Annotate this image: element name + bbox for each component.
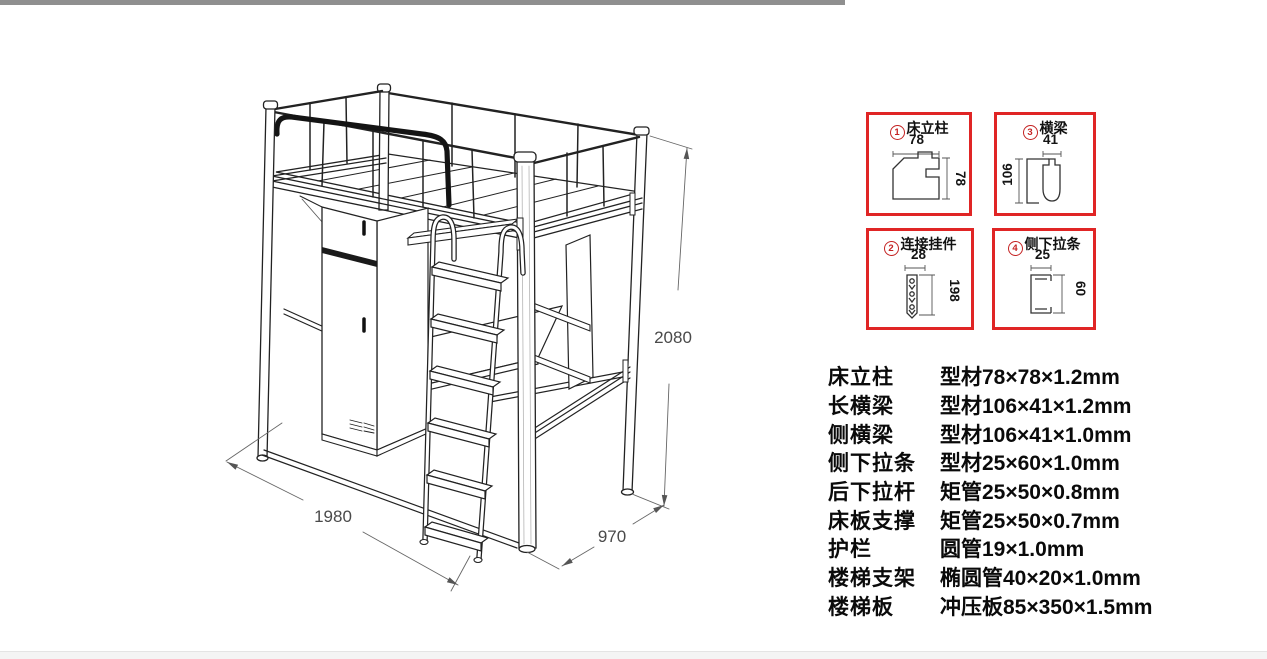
profile-dim-side: 60: [1073, 281, 1088, 296]
table-row: 侧横梁型材106×41×1.0mm: [828, 419, 1188, 448]
table-row: 床板支撑矩管25×50×0.7mm: [828, 505, 1188, 534]
table-row: 床立柱型材78×78×1.2mm: [828, 362, 1188, 391]
detail-box-side-tie-bar: 4侧下拉条 25 60: [992, 228, 1096, 330]
spec-value: 型材78×78×1.2mm: [940, 361, 1120, 391]
ladder: [420, 217, 523, 563]
spec-name: 侧横梁: [828, 419, 940, 449]
spec-value: 型材106×41×1.0mm: [940, 419, 1131, 449]
shelf-unit: [533, 235, 593, 389]
detail-box-beam: 3横梁 41 106: [994, 112, 1096, 216]
spec-value: 矩管25×50×0.8mm: [940, 476, 1120, 506]
spec-value: 圆管19×1.0mm: [940, 533, 1084, 563]
dim-length-label: 1980: [314, 507, 352, 526]
table-row: 楼梯板冲压板85×350×1.5mm: [828, 592, 1188, 621]
post-back-left: [378, 84, 391, 210]
bed-isometric-drawing: 1980 970 2080: [0, 0, 800, 650]
spec-table: 床立柱型材78×78×1.2mm 长横梁型材106×41×1.2mm 侧横梁型材…: [828, 362, 1188, 620]
profile-dim-side: 106: [1000, 163, 1015, 186]
spec-name: 护栏: [828, 533, 940, 563]
spec-name: 床板支撑: [828, 505, 940, 535]
dim-height-label: 2080: [654, 328, 692, 347]
table-row: 侧下拉条型材25×60×1.0mm: [828, 448, 1188, 477]
post-front-left: [257, 101, 278, 461]
table-row: 护栏圆管19×1.0mm: [828, 534, 1188, 563]
table-row: 楼梯支架椭圆管40×20×1.0mm: [828, 563, 1188, 592]
spec-name: 楼梯板: [828, 591, 940, 621]
post-back-right: [622, 127, 650, 495]
profile-dim-side: 198: [947, 279, 962, 302]
profile-dim-top: 28: [911, 247, 926, 262]
detail-box-connector-bracket: 2连接挂件 28 198: [866, 228, 974, 330]
spec-value: 椭圆管40×20×1.0mm: [940, 562, 1141, 592]
spec-name: 楼梯支架: [828, 562, 940, 592]
profile-dim-side: 78: [953, 171, 968, 186]
detail-box-bed-post: 1床立柱 78 78: [866, 112, 972, 216]
table-row: 后下拉杆矩管25×50×0.8mm: [828, 477, 1188, 506]
spec-name: 后下拉杆: [828, 476, 940, 506]
profile-dim-top: 25: [1035, 247, 1050, 262]
wardrobe-cabinet: [300, 196, 428, 456]
spec-value: 冲压板85×350×1.5mm: [940, 591, 1152, 621]
spec-name: 侧下拉条: [828, 447, 940, 477]
spec-value: 型材25×60×1.0mm: [940, 447, 1120, 477]
spec-name: 床立柱: [828, 361, 940, 391]
profile-dim-top: 78: [909, 132, 924, 147]
profile-dim-top: 41: [1043, 132, 1058, 147]
table-row: 长横梁型材106×41×1.2mm: [828, 391, 1188, 420]
spec-value: 矩管25×50×0.7mm: [940, 505, 1120, 535]
spec-name: 长横梁: [828, 390, 940, 420]
dim-depth-label: 970: [598, 527, 626, 546]
spec-value: 型材106×41×1.2mm: [940, 390, 1131, 420]
